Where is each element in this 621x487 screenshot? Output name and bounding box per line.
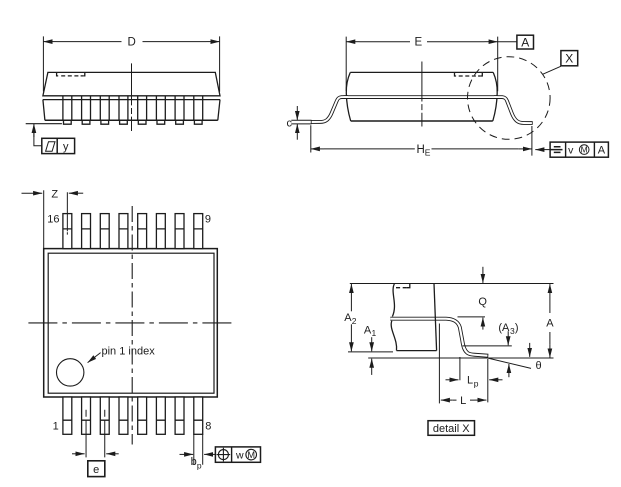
- svg-text:c: c: [287, 118, 293, 130]
- svg-text:E: E: [425, 148, 431, 158]
- svg-text:X: X: [565, 52, 573, 66]
- svg-text:9: 9: [205, 214, 211, 226]
- svg-text:M: M: [247, 450, 255, 460]
- svg-text:16: 16: [47, 214, 59, 226]
- svg-text:detail X: detail X: [433, 423, 470, 435]
- svg-text:E: E: [414, 37, 422, 49]
- svg-text:2: 2: [352, 316, 357, 326]
- svg-text:1: 1: [53, 421, 59, 433]
- svg-text:H: H: [417, 144, 425, 156]
- svg-text:p: p: [474, 378, 479, 388]
- svg-text:Q: Q: [478, 296, 487, 308]
- svg-text:e: e: [93, 464, 99, 476]
- svg-text:A: A: [546, 318, 554, 330]
- svg-text:L: L: [467, 375, 473, 387]
- svg-text:b: b: [191, 456, 197, 468]
- svg-text:D: D: [128, 37, 136, 49]
- svg-text:y: y: [63, 141, 69, 153]
- svg-text:M: M: [581, 145, 588, 155]
- svg-text:w: w: [235, 449, 244, 461]
- svg-text:A: A: [598, 144, 606, 156]
- svg-text:θ: θ: [536, 360, 542, 372]
- svg-text:1: 1: [372, 328, 377, 338]
- svg-text:pin 1 index: pin 1 index: [102, 345, 156, 357]
- svg-text:8: 8: [205, 421, 211, 433]
- svg-text:): ): [515, 322, 519, 334]
- svg-text:L: L: [460, 395, 466, 407]
- svg-text:v: v: [568, 144, 574, 156]
- svg-text:Z: Z: [51, 189, 58, 201]
- svg-text:(A: (A: [498, 322, 510, 334]
- svg-text:A: A: [521, 35, 529, 49]
- svg-text:p: p: [197, 460, 202, 470]
